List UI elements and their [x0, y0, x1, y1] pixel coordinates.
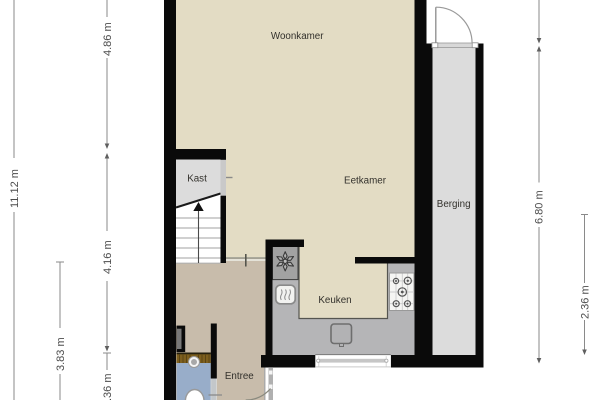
svg-text:Kast: Kast: [187, 174, 207, 185]
svg-text:.36 m: .36 m: [102, 373, 114, 400]
svg-text:6.80 m: 6.80 m: [534, 190, 546, 224]
svg-text:Entree: Entree: [225, 371, 254, 382]
svg-text:Keuken: Keuken: [318, 295, 351, 306]
svg-text:3.83 m: 3.83 m: [55, 337, 67, 371]
svg-text:2.36 m: 2.36 m: [580, 285, 592, 319]
svg-text:Eetkamer: Eetkamer: [344, 176, 387, 187]
svg-text:4.16 m: 4.16 m: [102, 240, 114, 274]
svg-text:Woonkamer: Woonkamer: [271, 31, 324, 42]
svg-text:Berging: Berging: [437, 199, 471, 210]
svg-text:11.12 m: 11.12 m: [9, 169, 21, 208]
svg-text:4.86 m: 4.86 m: [102, 22, 114, 56]
